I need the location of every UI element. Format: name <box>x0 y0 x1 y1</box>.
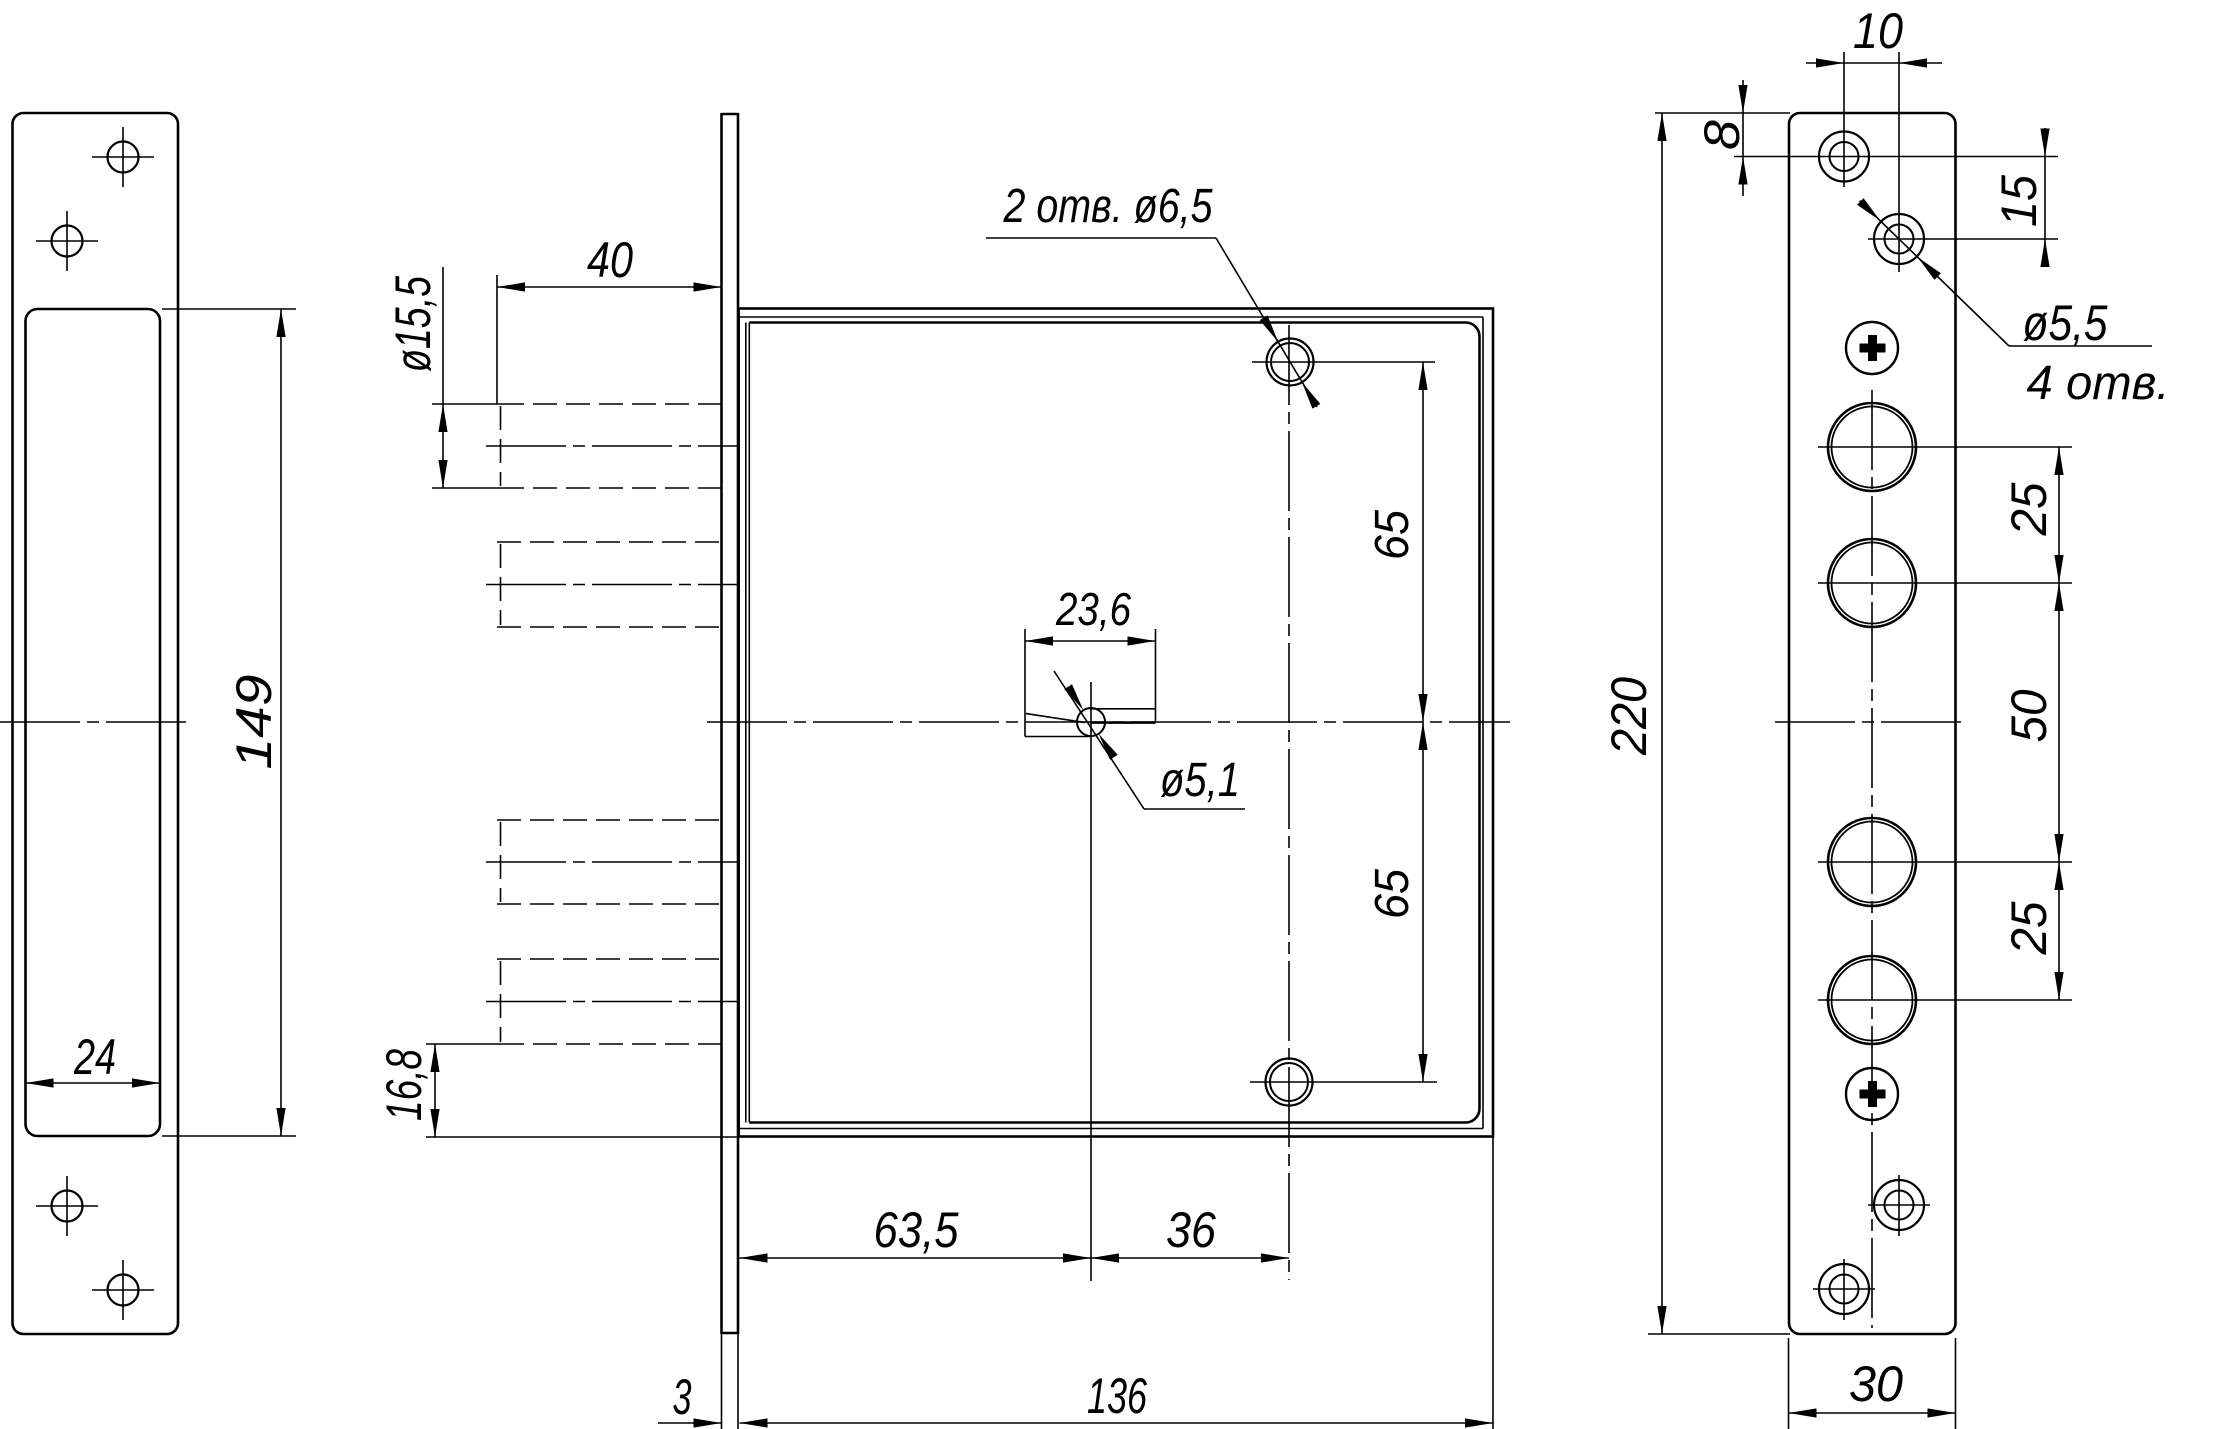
svg-text:50: 50 <box>2001 689 2057 742</box>
svg-text:15: 15 <box>1991 175 2047 227</box>
svg-text:8: 8 <box>1694 120 1750 150</box>
svg-text:25: 25 <box>2001 901 2057 955</box>
svg-text:24: 24 <box>73 1029 116 1085</box>
svg-text:65: 65 <box>1366 869 1419 919</box>
svg-text:36: 36 <box>1166 1202 1216 1258</box>
svg-text:149: 149 <box>226 675 282 770</box>
svg-text:25: 25 <box>2001 482 2057 536</box>
svg-text:ø15,5: ø15,5 <box>385 276 441 372</box>
svg-text:30: 30 <box>1849 1356 1903 1412</box>
svg-text:136: 136 <box>1087 1368 1147 1424</box>
svg-text:4 отв.: 4 отв. <box>2027 357 2170 410</box>
svg-text:2 отв. ø6,5: 2 отв. ø6,5 <box>1003 180 1213 233</box>
svg-text:10: 10 <box>1853 3 1903 59</box>
svg-text:16,8: 16,8 <box>376 1049 432 1121</box>
svg-text:40: 40 <box>587 232 633 288</box>
svg-text:ø5,5: ø5,5 <box>2023 295 2108 351</box>
svg-text:220: 220 <box>1601 677 1657 756</box>
svg-text:63,5: 63,5 <box>874 1202 959 1258</box>
svg-text:3: 3 <box>673 1369 692 1425</box>
svg-text:ø5,1: ø5,1 <box>1160 754 1240 807</box>
svg-text:23,6: 23,6 <box>1055 583 1131 635</box>
svg-text:65: 65 <box>1366 510 1419 560</box>
